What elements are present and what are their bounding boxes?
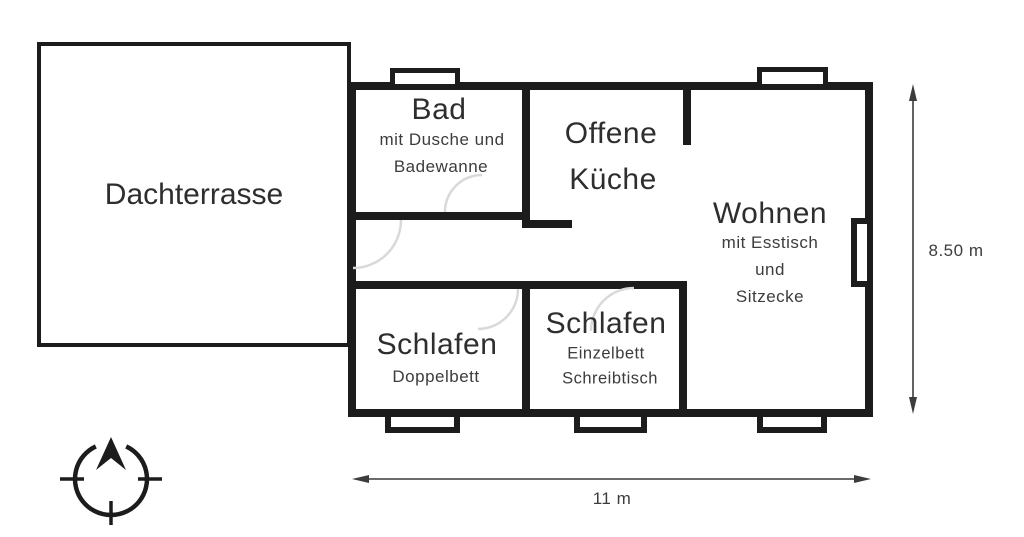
wall-bedroom-divider (522, 289, 530, 409)
floor-plan: Dachterrasse (0, 0, 1024, 537)
room-sub-schlafen-einzel-2: Schreibtisch (562, 370, 658, 389)
wall-kueche-wohnen (683, 90, 691, 145)
room-sub-schlafen-doppel: Doppelbett (392, 367, 479, 387)
room-sub-bad-1: mit Dusche und (379, 130, 504, 150)
room-label-kueche-1: Offene (565, 117, 658, 151)
window-doppelbett-bottom (385, 411, 460, 433)
dimension-width-arrow (352, 475, 871, 483)
room-dachterrasse: Dachterrasse (37, 42, 351, 347)
window-wohnen-bottom (757, 411, 827, 433)
wall-bedrooms-top (356, 281, 687, 289)
room-label-bad: Bad (412, 93, 467, 127)
compass-north-arrow-icon (60, 437, 162, 525)
wall-kueche-stub (522, 220, 572, 228)
window-bad-top (390, 68, 460, 89)
room-label-kueche-2: Küche (569, 163, 657, 197)
dimension-width-label: 11 m (593, 489, 632, 509)
dimension-height-arrow (909, 84, 917, 414)
wall-bad-bottom (356, 212, 530, 220)
room-label-wohnen: Wohnen (713, 197, 827, 231)
window-wohnen-top (757, 67, 828, 89)
room-label-schlafen-doppel: Schlafen (377, 328, 498, 362)
room-sub-schlafen-einzel-1: Einzelbett (567, 345, 644, 364)
room-sub-wohnen-1: mit Esstisch (722, 233, 819, 253)
room-sub-bad-2: Badewanne (394, 157, 488, 177)
window-wohnen-right (851, 218, 873, 287)
room-sub-wohnen-2: und (755, 260, 785, 280)
room-sub-wohnen-3: Sitzecke (736, 287, 804, 307)
room-label-dachterrasse: Dachterrasse (105, 178, 283, 212)
dimension-height-label: 8.50 m (929, 241, 984, 261)
room-label-schlafen-einzel: Schlafen (546, 307, 667, 341)
window-einzelbett-bottom (574, 411, 647, 433)
wall-einzelbett-right (679, 289, 687, 409)
wall-bad-kueche (522, 90, 530, 220)
